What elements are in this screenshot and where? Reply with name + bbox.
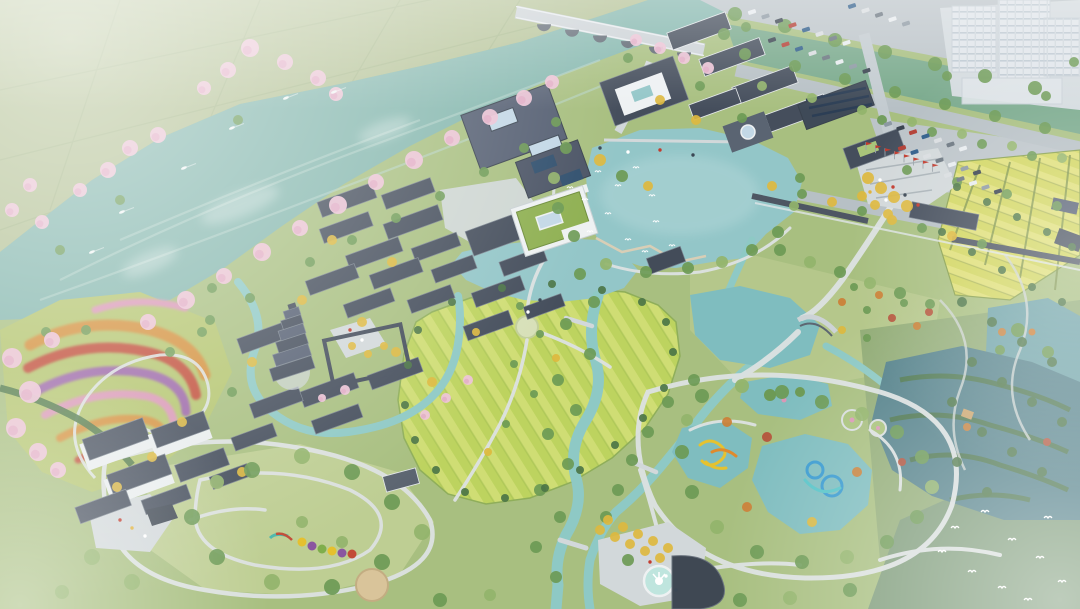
haze-overlays <box>0 0 1080 609</box>
masterplan-rendering: Hazy farmland across the river Tidal riv… <box>0 0 1080 609</box>
rendering-canvas: Hazy farmland across the river Tidal riv… <box>0 0 1080 609</box>
